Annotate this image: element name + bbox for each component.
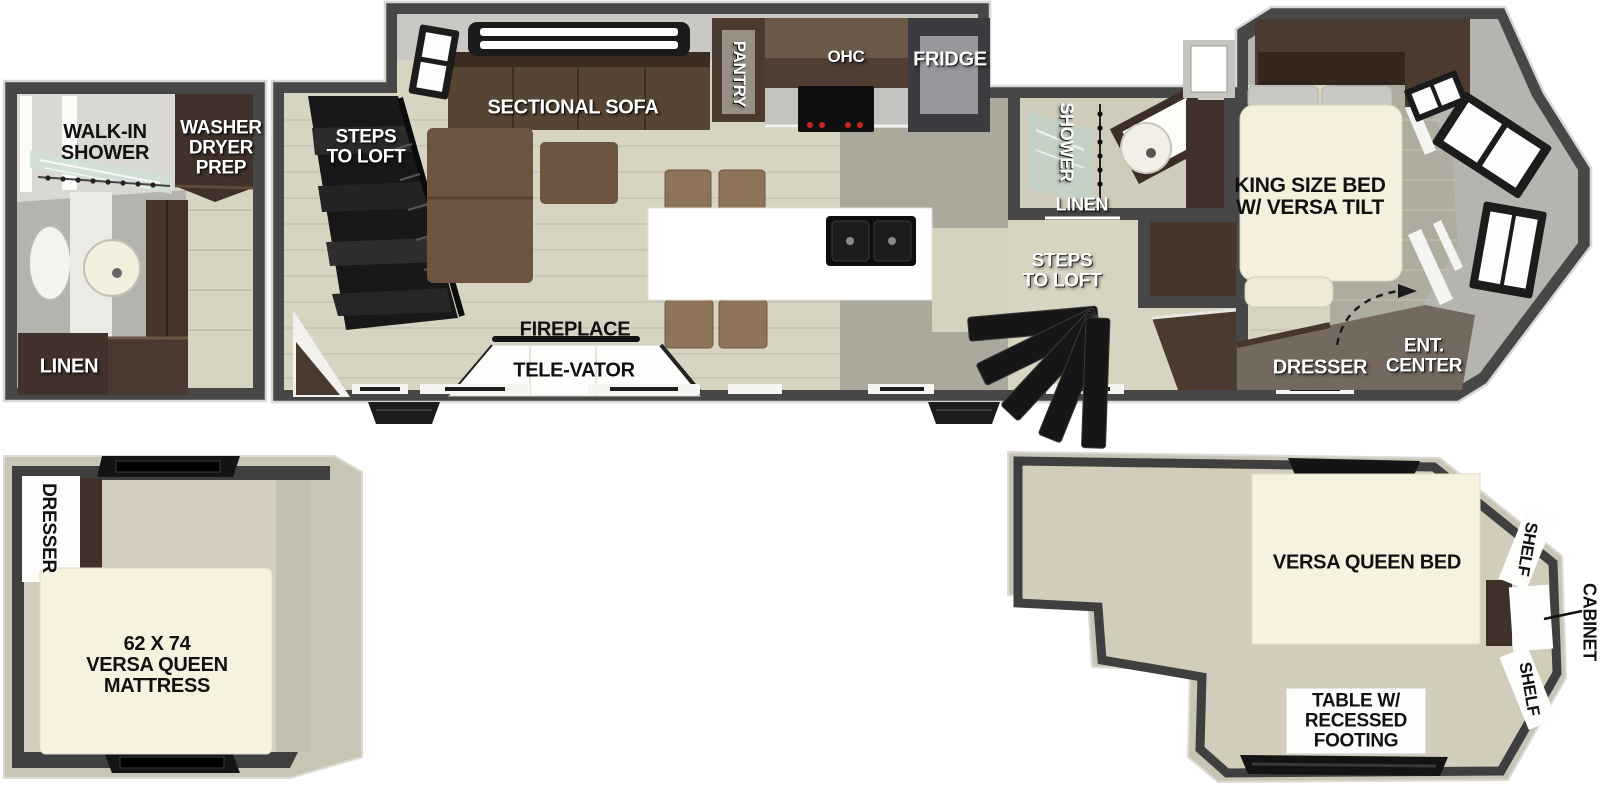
loft-rear — [1008, 452, 1582, 782]
loft-mattress — [40, 568, 272, 754]
skylight-icon — [468, 22, 690, 56]
loft-dresser — [22, 476, 80, 582]
loft-front — [4, 456, 362, 778]
entry-step — [928, 402, 1000, 424]
loft-table — [1286, 688, 1426, 754]
linen-cabinet — [18, 333, 108, 395]
bathroom-sink — [84, 240, 140, 296]
sofa-ottoman — [540, 142, 618, 204]
kitchen — [712, 18, 990, 132]
stool — [665, 300, 713, 348]
stool — [665, 170, 711, 214]
entry-step — [368, 402, 440, 424]
king-bed — [1240, 105, 1402, 281]
bathroom-block — [4, 81, 266, 401]
spiral-steps-to-loft — [967, 306, 1110, 448]
fireplace-icon — [492, 336, 640, 342]
loft-cabinet — [1486, 580, 1512, 646]
loft-queen-bed — [1252, 474, 1480, 644]
floorplan-stage: WALK-IN SHOWER WASHER DRYER PREP LINEN S… — [0, 0, 1600, 786]
floorplan-graphic — [0, 0, 1600, 786]
overhead-cabinet — [765, 18, 925, 58]
wardrobe — [1150, 222, 1236, 296]
sofa-chaise — [427, 128, 533, 283]
stool — [719, 300, 767, 348]
toilet — [29, 226, 71, 300]
stool — [719, 170, 765, 214]
